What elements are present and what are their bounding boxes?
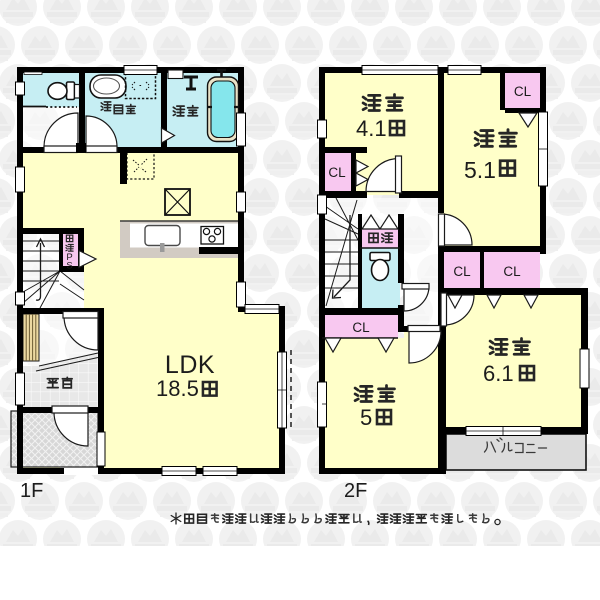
svg-text:2F: 2F — [344, 480, 367, 502]
svg-text:LDK: LDK — [165, 351, 215, 379]
svg-text:CL: CL — [352, 320, 370, 335]
svg-text:CL: CL — [453, 264, 471, 279]
svg-text:CL: CL — [328, 165, 346, 180]
svg-text:6.1: 6.1 — [483, 361, 514, 386]
svg-text:S: S — [66, 261, 72, 272]
svg-text:5: 5 — [360, 405, 372, 430]
svg-text:CL: CL — [514, 84, 532, 99]
svg-text:4.1: 4.1 — [356, 116, 387, 141]
svg-text:1F: 1F — [20, 480, 43, 502]
svg-text:5.1: 5.1 — [464, 157, 496, 183]
svg-text:18.5: 18.5 — [156, 376, 199, 401]
svg-text:CL: CL — [503, 264, 521, 279]
